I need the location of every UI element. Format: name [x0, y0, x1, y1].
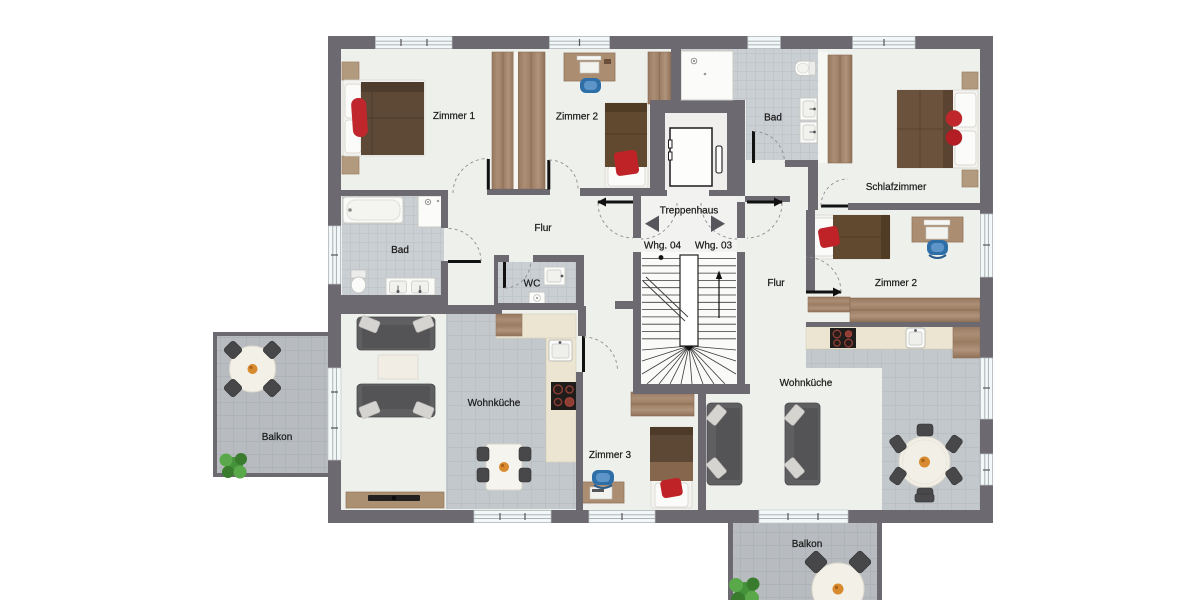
svg-text:Wohnküche: Wohnküche	[468, 398, 521, 409]
svg-text:Flur: Flur	[534, 223, 552, 234]
svg-text:WC: WC	[524, 279, 541, 290]
svg-text:Bad: Bad	[764, 113, 782, 124]
svg-text:Bad: Bad	[391, 245, 409, 256]
svg-text:Flur: Flur	[767, 278, 785, 289]
svg-text:Wohnküche: Wohnküche	[780, 378, 833, 389]
svg-text:Balkon: Balkon	[262, 432, 293, 443]
svg-text:Schlafzimmer: Schlafzimmer	[866, 182, 927, 193]
svg-text:Zimmer 3: Zimmer 3	[589, 450, 632, 461]
svg-text:Whg. 04: Whg. 04	[644, 240, 682, 251]
svg-text:Treppenhaus: Treppenhaus	[660, 205, 719, 216]
svg-text:Zimmer 1: Zimmer 1	[433, 111, 476, 122]
svg-text:Whg. 03: Whg. 03	[695, 240, 733, 251]
svg-text:Balkon: Balkon	[792, 539, 823, 550]
svg-text:Zimmer 2: Zimmer 2	[556, 111, 599, 122]
svg-text:Zimmer 2: Zimmer 2	[875, 278, 918, 289]
